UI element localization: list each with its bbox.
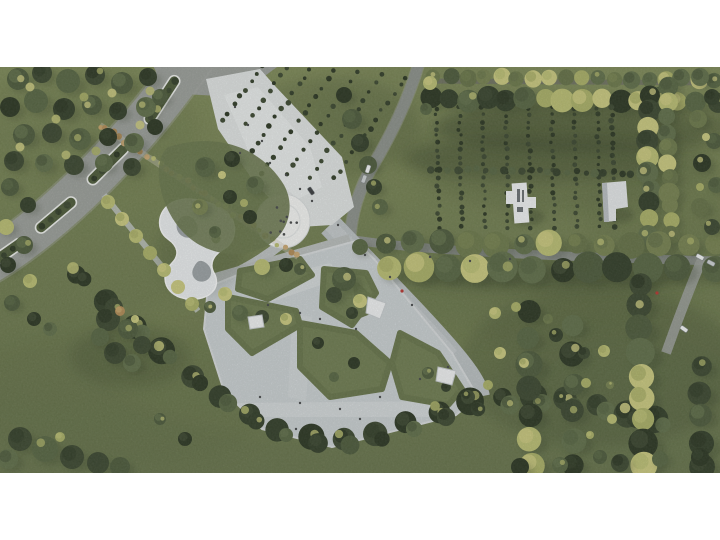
screenshot-frame: Top-down photorealistic site-plan render…: [0, 0, 720, 540]
site-plan-scene: [0, 67, 720, 473]
render-grain-overlay: [0, 67, 720, 473]
letterbox-bottom: [0, 473, 720, 540]
letterbox-top: [0, 0, 720, 67]
park-aerial-rendering: [0, 67, 720, 473]
